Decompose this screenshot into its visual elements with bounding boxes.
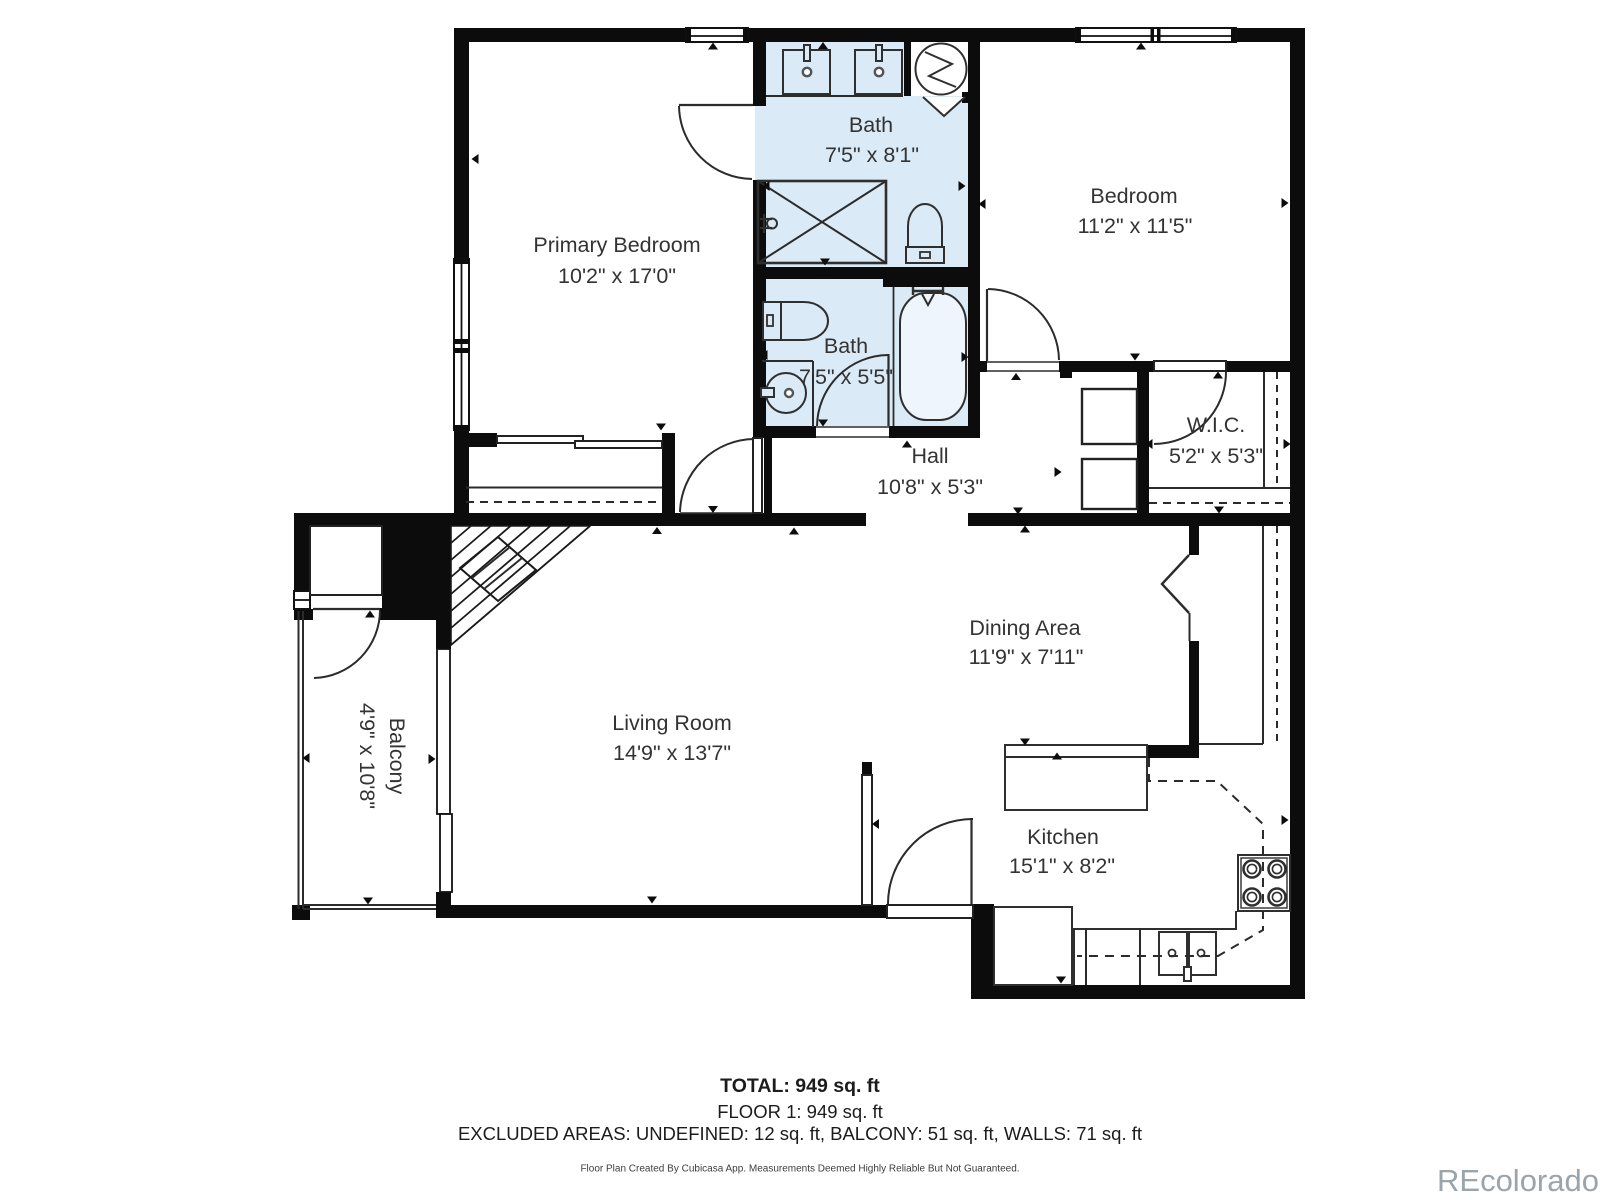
svg-text:7'5" x 8'1": 7'5" x 8'1" [825,143,919,167]
svg-text:EXCLUDED AREAS: UNDEFINED: 12: EXCLUDED AREAS: UNDEFINED: 12 sq. ft, BA… [458,1123,1142,1144]
svg-text:11'2" x 11'5": 11'2" x 11'5" [1078,214,1193,238]
svg-text:7'5" x 5'5": 7'5" x 5'5" [799,365,893,389]
svg-text:Bath: Bath [824,334,868,358]
svg-text:4'9" x 10'8": 4'9" x 10'8" [355,703,379,809]
svg-text:Bath: Bath [849,113,893,137]
svg-text:Floor Plan Created By Cubicasa: Floor Plan Created By Cubicasa App. Meas… [580,1164,1019,1175]
svg-text:Living Room: Living Room [612,711,732,735]
svg-text:W.I.C.: W.I.C. [1187,413,1246,437]
svg-text:Balcony: Balcony [385,718,409,795]
svg-text:15'1" x 8'2": 15'1" x 8'2" [1009,854,1115,878]
svg-text:11'9" x 7'11": 11'9" x 7'11" [969,645,1084,669]
svg-text:14'9" x 13'7": 14'9" x 13'7" [613,741,731,765]
svg-text:Bedroom: Bedroom [1090,184,1177,208]
svg-text:10'2" x 17'0": 10'2" x 17'0" [558,264,676,288]
svg-text:TOTAL: 949 sq. ft: TOTAL: 949 sq. ft [720,1075,880,1097]
svg-text:10'8" x 5'3": 10'8" x 5'3" [877,475,983,499]
svg-text:5'2" x 5'3": 5'2" x 5'3" [1169,444,1263,468]
svg-text:Primary Bedroom: Primary Bedroom [533,233,700,257]
svg-text:Hall: Hall [911,444,948,468]
svg-text:FLOOR 1: 949 sq. ft: FLOOR 1: 949 sq. ft [717,1101,883,1122]
svg-text:REcolorado: REcolorado [1437,1163,1599,1198]
svg-text:Kitchen: Kitchen [1027,825,1099,849]
svg-text:Dining Area: Dining Area [969,616,1080,640]
